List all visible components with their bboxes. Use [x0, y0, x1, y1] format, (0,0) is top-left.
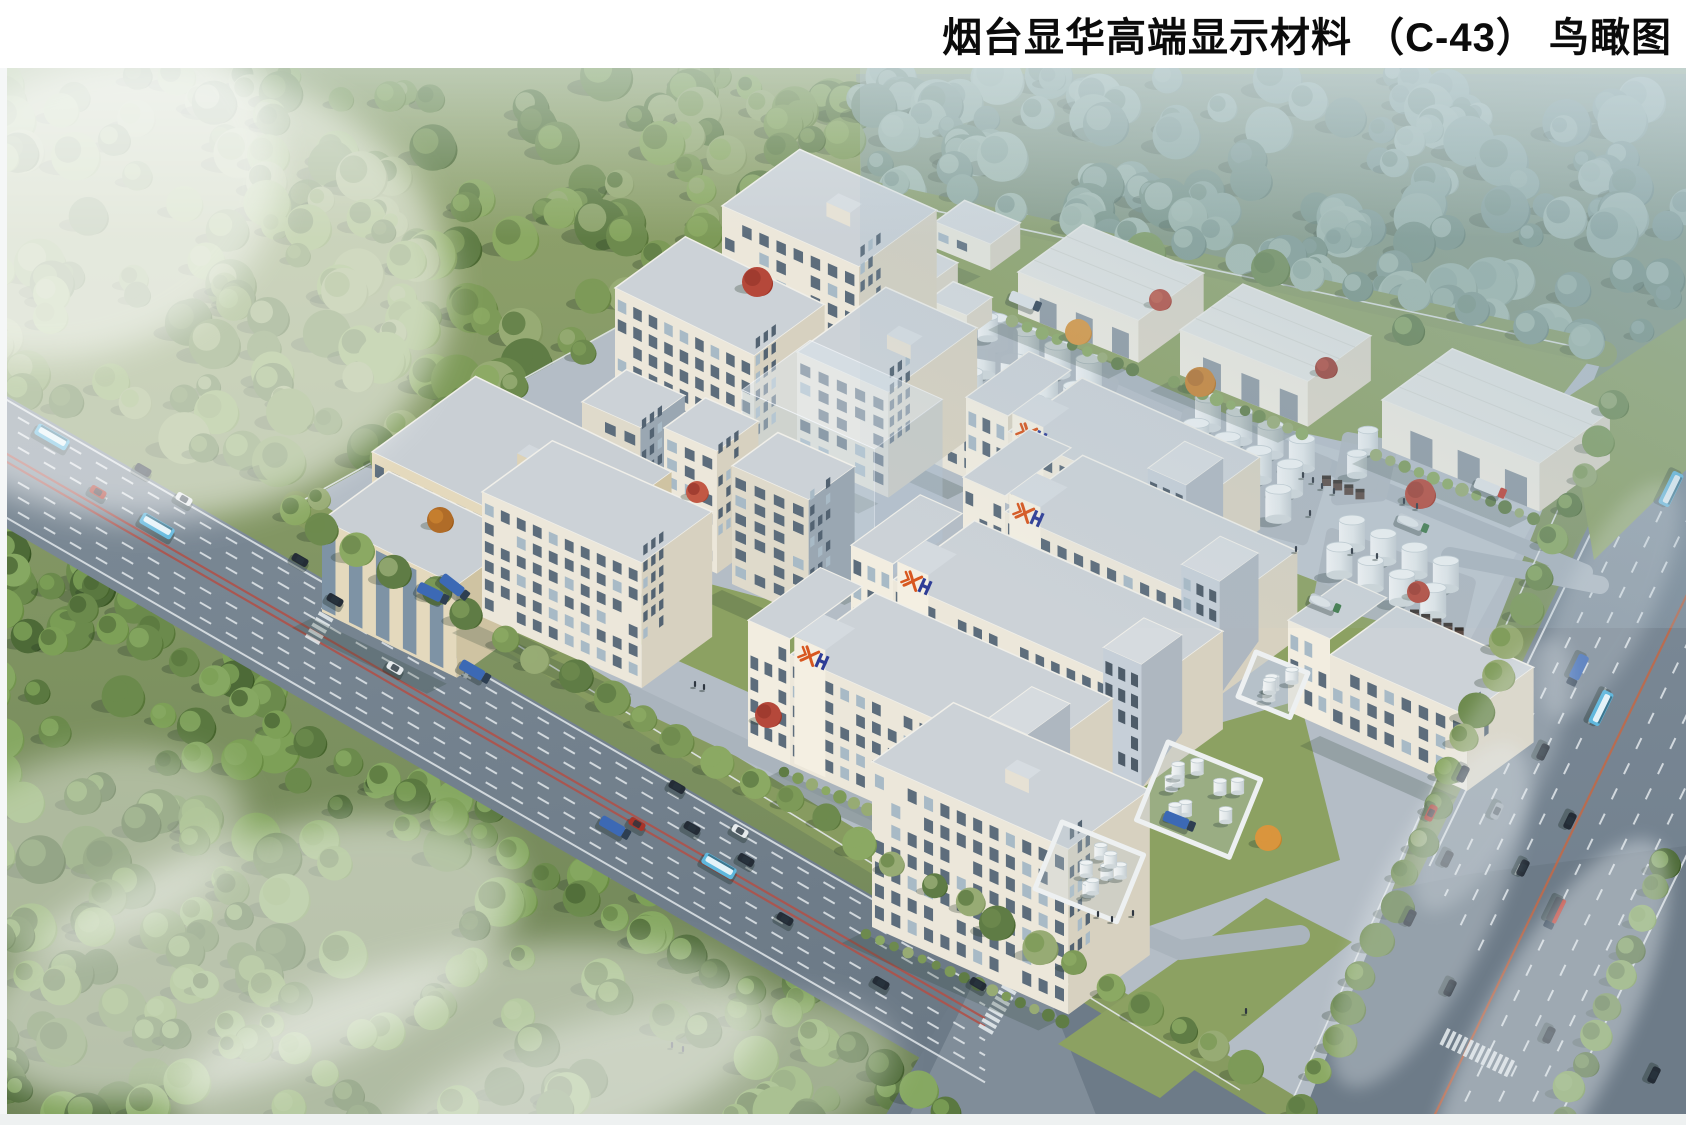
frame-left-margin [0, 68, 7, 1125]
title-bar: 烟台显华高端显示材料 （C-43） 鸟瞰图 [0, 0, 1686, 68]
frame-bottom-margin [0, 1114, 1686, 1125]
rendering-page: 烟台显华高端显示材料 （C-43） 鸟瞰图 [0, 0, 1686, 1125]
aerial-site-rendering [0, 0, 1686, 1125]
page-title: 烟台显华高端显示材料 （C-43） 鸟瞰图 [942, 5, 1672, 63]
